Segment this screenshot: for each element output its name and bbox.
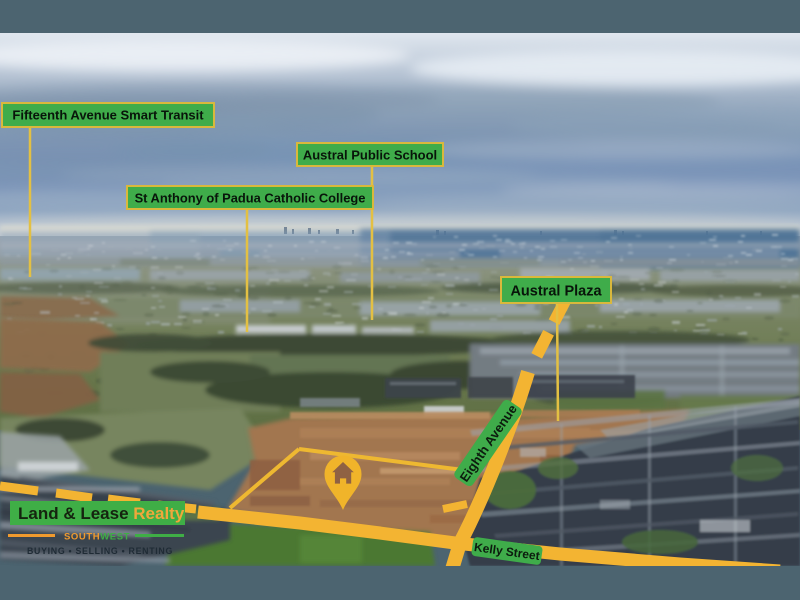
svg-text:Fifteenth Avenue Smart Transit: Fifteenth Avenue Smart Transit (12, 108, 204, 123)
svg-text:Austral Plaza: Austral Plaza (510, 284, 602, 300)
svg-text:Austral Public School: Austral Public School (303, 148, 437, 163)
svg-text:SOUTHWEST: SOUTHWEST (64, 532, 130, 543)
svg-text:Land & Lease Realty: Land & Lease Realty (18, 504, 185, 523)
svg-text:BUYING • SELLING • RENTING: BUYING • SELLING • RENTING (27, 546, 173, 556)
svg-text:St Anthony of Padua Catholic C: St Anthony of Padua Catholic College (135, 191, 366, 206)
